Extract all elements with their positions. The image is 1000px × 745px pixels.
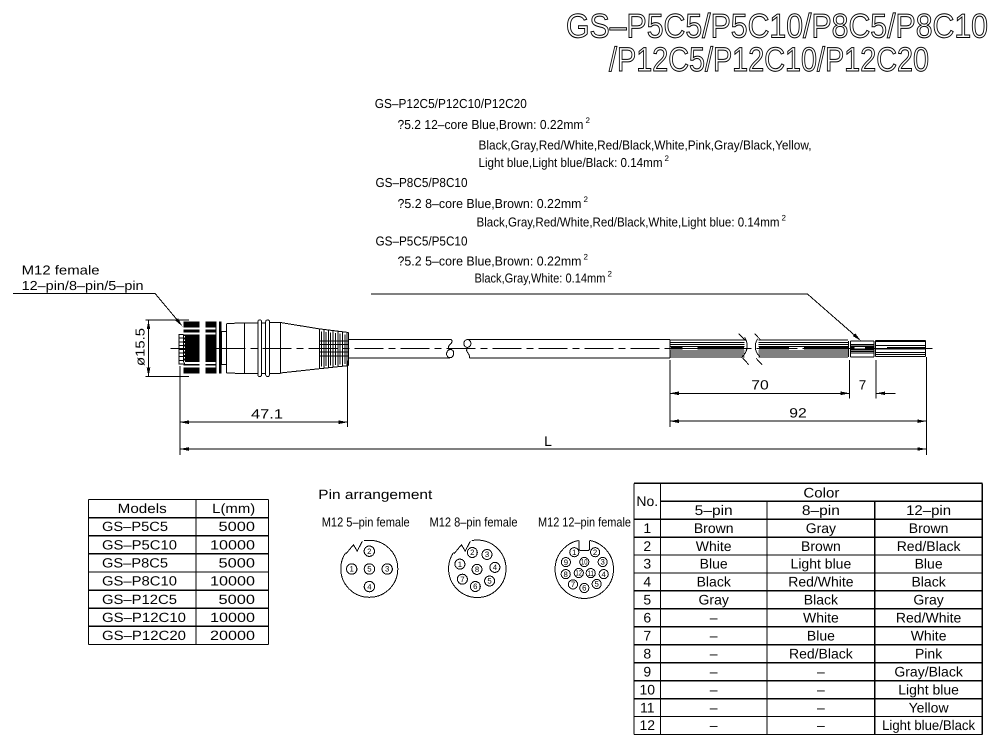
svg-text:6: 6: [643, 610, 651, 626]
svg-text:GS–P5C5/P5C10: GS–P5C5/P5C10: [376, 233, 468, 248]
svg-text:10000: 10000: [210, 610, 255, 625]
svg-text:8–pin: 8–pin: [802, 502, 840, 518]
svg-text:11: 11: [640, 699, 655, 715]
svg-text:4: 4: [493, 563, 498, 572]
svg-text:47.1: 47.1: [251, 407, 283, 422]
svg-text:6: 6: [582, 584, 586, 593]
svg-text:12: 12: [640, 717, 656, 733]
svg-text:?5.2 5–core Blue,Brown: 0.22: ?5.2 5–core Blue,Brown: 0.22mm: [398, 254, 582, 269]
svg-text:–: –: [817, 699, 825, 715]
svg-text:3: 3: [485, 550, 489, 559]
svg-text:4: 4: [602, 570, 607, 579]
svg-text:GS–P5C5/P5C10/P8C5/P8C10: GS–P5C5/P5C10/P8C5/P8C10: [566, 8, 988, 46]
svg-text:Blue: Blue: [915, 556, 943, 572]
svg-text:Blue: Blue: [807, 628, 835, 644]
svg-text:10000: 10000: [210, 574, 255, 589]
svg-text:7: 7: [571, 580, 575, 589]
svg-text:2: 2: [643, 538, 651, 554]
svg-text:Red/White: Red/White: [788, 574, 854, 590]
svg-text:10000: 10000: [210, 537, 255, 552]
svg-text:2: 2: [470, 548, 474, 557]
svg-text:5: 5: [367, 565, 372, 574]
svg-text:–: –: [710, 699, 718, 715]
svg-text:Models: Models: [118, 501, 167, 516]
svg-text:Gray: Gray: [806, 520, 836, 536]
svg-text:Gray: Gray: [699, 592, 729, 608]
svg-text:No.: No.: [636, 493, 658, 509]
svg-text:1: 1: [458, 560, 462, 569]
svg-text:7: 7: [460, 575, 464, 584]
svg-text:GS–P5C5: GS–P5C5: [102, 519, 168, 534]
svg-text:3: 3: [601, 558, 605, 567]
svg-text:Black,Gray,Red/White,Red/Black: Black,Gray,Red/White,Red/Black,White,Pin…: [479, 137, 812, 152]
svg-text:M12 8–pin female: M12 8–pin female: [430, 515, 518, 530]
svg-text:GS–P5C10: GS–P5C10: [102, 537, 177, 552]
svg-text:1: 1: [643, 520, 651, 536]
svg-text:2: 2: [608, 270, 613, 279]
svg-text:GS–P8C5/P8C10: GS–P8C5/P8C10: [376, 175, 468, 190]
svg-text:Red/Black: Red/Black: [897, 538, 962, 554]
svg-text:12: 12: [576, 569, 583, 578]
svg-text:White: White: [911, 628, 947, 644]
svg-text:2: 2: [367, 547, 371, 556]
svg-text:Black,Gray,Red/White,Red/Black: Black,Gray,Red/White,Red/Black,White,Lig…: [477, 214, 780, 229]
svg-text:Brown: Brown: [801, 538, 841, 554]
svg-text:Black,Gray,White: 0.14mm: Black,Gray,White: 0.14mm: [475, 271, 606, 286]
svg-text:Light blue/Black: Light blue/Black: [882, 717, 976, 733]
svg-text:Gray: Gray: [913, 592, 943, 608]
svg-text:1: 1: [350, 565, 354, 574]
svg-text:–: –: [710, 610, 718, 626]
svg-text:Color: Color: [803, 484, 839, 500]
svg-text:4: 4: [367, 582, 372, 591]
svg-text:–: –: [817, 663, 825, 679]
svg-text:Red/White: Red/White: [896, 610, 962, 626]
svg-text:Brown: Brown: [694, 520, 734, 536]
svg-text:2: 2: [665, 154, 670, 163]
svg-text:Black: Black: [804, 592, 839, 608]
svg-text:8: 8: [475, 565, 479, 574]
svg-text:GS–P12C5/P12C10/P12C20: GS–P12C5/P12C10/P12C20: [375, 96, 527, 111]
svg-text:5000: 5000: [219, 592, 256, 607]
svg-text:8: 8: [564, 570, 568, 579]
svg-text:White: White: [696, 538, 732, 554]
svg-text:?5.2 8–core Blue,Brown: 0.22: ?5.2 8–core Blue,Brown: 0.22mm: [398, 196, 582, 211]
svg-text:9: 9: [643, 663, 651, 679]
svg-text:20000: 20000: [210, 628, 255, 643]
svg-text:Light blue: Light blue: [898, 681, 959, 697]
svg-text:8: 8: [643, 646, 651, 662]
svg-text:–: –: [710, 681, 718, 697]
svg-text:Brown: Brown: [909, 520, 949, 536]
svg-text:M12 female: M12 female: [22, 263, 100, 278]
svg-text:White: White: [803, 610, 839, 626]
svg-text:5000: 5000: [219, 556, 256, 571]
svg-text:–: –: [710, 646, 718, 662]
svg-text:1: 1: [572, 548, 576, 557]
svg-text:GS–P8C10: GS–P8C10: [102, 574, 177, 589]
svg-text:Red/Black: Red/Black: [789, 646, 854, 662]
svg-text:4: 4: [643, 574, 651, 590]
svg-text:2: 2: [584, 195, 589, 204]
svg-text:GS–P12C20: GS–P12C20: [102, 628, 186, 643]
svg-text:GS–P12C10: GS–P12C10: [102, 610, 186, 625]
svg-text:–: –: [817, 681, 825, 697]
svg-text:5–pin: 5–pin: [695, 502, 733, 518]
svg-text:–: –: [710, 717, 718, 733]
svg-text:12–pin: 12–pin: [906, 502, 951, 518]
svg-text:92: 92: [789, 406, 807, 421]
svg-text:GS–P12C5: GS–P12C5: [102, 592, 177, 607]
svg-text:–: –: [710, 628, 718, 644]
svg-text:L: L: [544, 433, 552, 449]
svg-text:ø15.5: ø15.5: [133, 328, 148, 366]
svg-text:3: 3: [643, 556, 651, 572]
svg-text:2: 2: [584, 253, 589, 262]
svg-text:5: 5: [595, 580, 600, 589]
svg-text:9: 9: [564, 558, 568, 567]
svg-text:L(mm): L(mm): [212, 501, 255, 516]
svg-text:Black: Black: [697, 574, 732, 590]
svg-text:Pin arrangement: Pin arrangement: [318, 487, 432, 502]
svg-text:M12 5–pin female: M12 5–pin female: [322, 515, 410, 530]
svg-text:70: 70: [751, 378, 769, 393]
svg-text:7: 7: [859, 378, 867, 393]
svg-text:3: 3: [385, 565, 389, 574]
svg-text:Pink: Pink: [915, 646, 943, 662]
svg-text:5: 5: [643, 592, 651, 608]
svg-text:Light blue,Light blue/Black:: Light blue,Light blue/Black: 0.14mm: [479, 155, 663, 170]
svg-text:5000: 5000: [219, 519, 256, 534]
svg-text:–: –: [817, 717, 825, 733]
svg-text:GS–P8C5: GS–P8C5: [102, 556, 168, 571]
svg-text:5: 5: [487, 577, 492, 586]
svg-text:2: 2: [593, 548, 597, 557]
svg-text:–: –: [710, 663, 718, 679]
svg-text:2: 2: [782, 213, 787, 222]
svg-text:11: 11: [587, 569, 594, 578]
svg-text:Light blue: Light blue: [791, 556, 852, 572]
svg-text:/P12C5/P12C10/P12C20: /P12C5/P12C10/P12C20: [609, 41, 929, 79]
svg-text:12–pin/8–pin/5–pin: 12–pin/8–pin/5–pin: [22, 278, 144, 293]
svg-text:10: 10: [640, 681, 656, 697]
svg-text:Gray/Black: Gray/Black: [894, 663, 963, 679]
svg-text:Black: Black: [911, 574, 946, 590]
svg-text:6: 6: [473, 582, 477, 591]
svg-text:10: 10: [581, 558, 588, 567]
svg-text:M12 12–pin female: M12 12–pin female: [538, 515, 631, 530]
svg-text:Blue: Blue: [700, 556, 728, 572]
svg-text:7: 7: [643, 628, 651, 644]
svg-text:2: 2: [586, 116, 591, 125]
svg-text:?5.2 12–core Blue,Brown: 0.2: ?5.2 12–core Blue,Brown: 0.22mm: [398, 117, 584, 132]
svg-text:Yellow: Yellow: [909, 699, 950, 715]
